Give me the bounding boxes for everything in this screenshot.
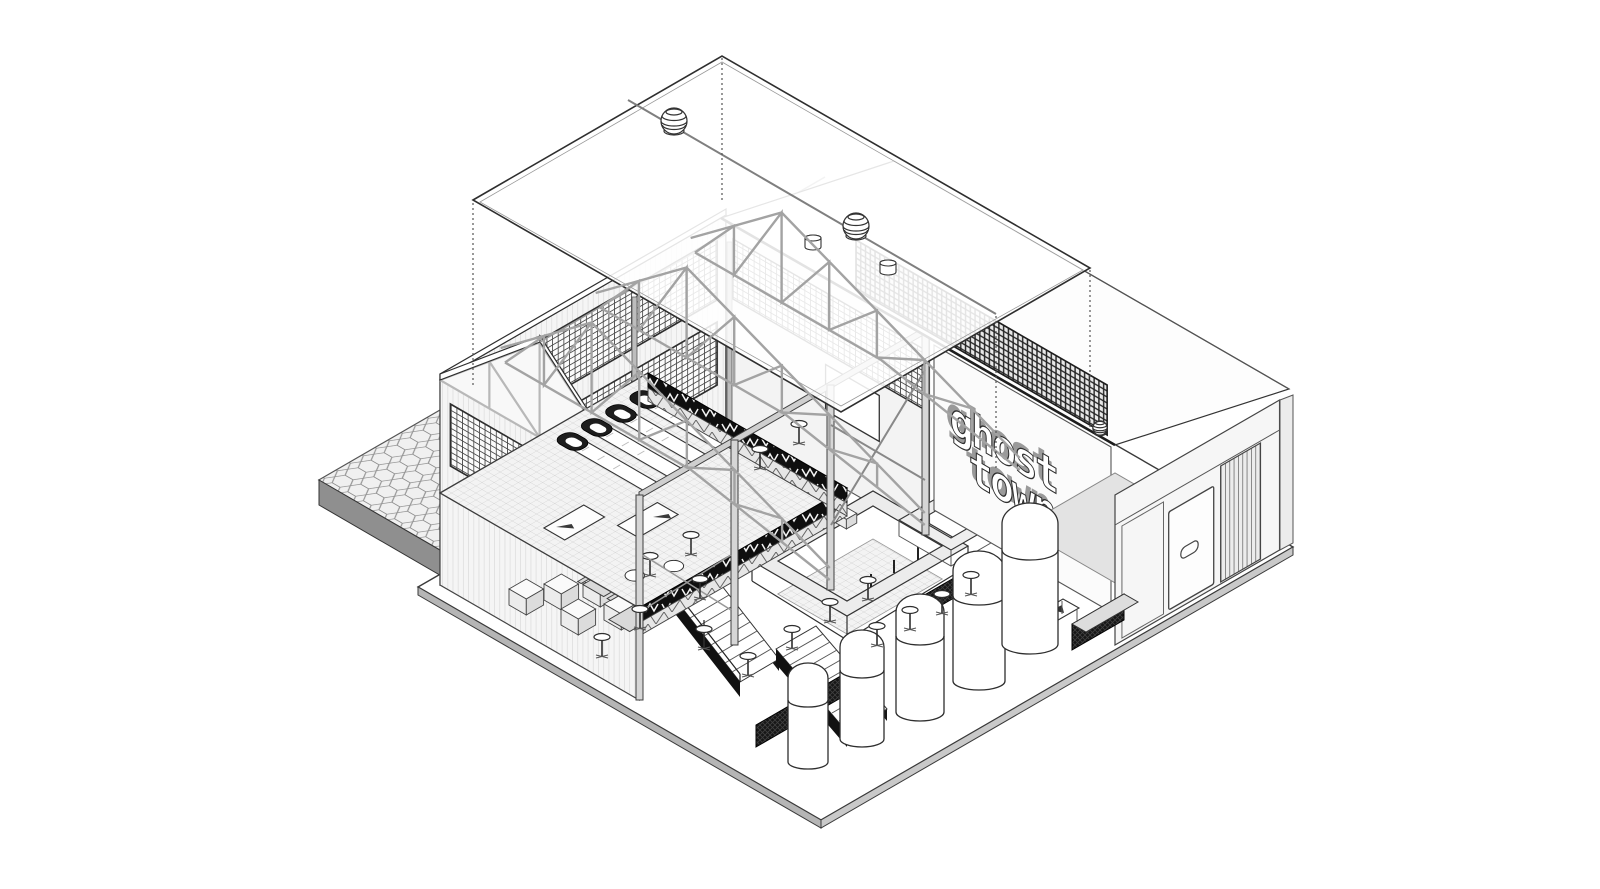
axonometric-drawing: ghost town ghost town: [0, 0, 1600, 889]
structural-column: [636, 495, 643, 700]
drawing-canvas: ghost town ghost town: [0, 0, 1600, 889]
tank: [1002, 503, 1058, 654]
roof-turbine-vent: [843, 213, 869, 240]
roof-pipe-vent: [880, 260, 896, 275]
tank: [896, 594, 944, 721]
tank: [840, 630, 884, 747]
roller-door: [1221, 443, 1261, 582]
roof-pipe-vent: [805, 235, 821, 250]
annex-roof-vent: [1093, 421, 1107, 436]
tank: [953, 551, 1005, 690]
roof-turbine-vent: [661, 108, 687, 135]
tank: [788, 663, 828, 769]
annex-side-wall: [1280, 395, 1293, 550]
